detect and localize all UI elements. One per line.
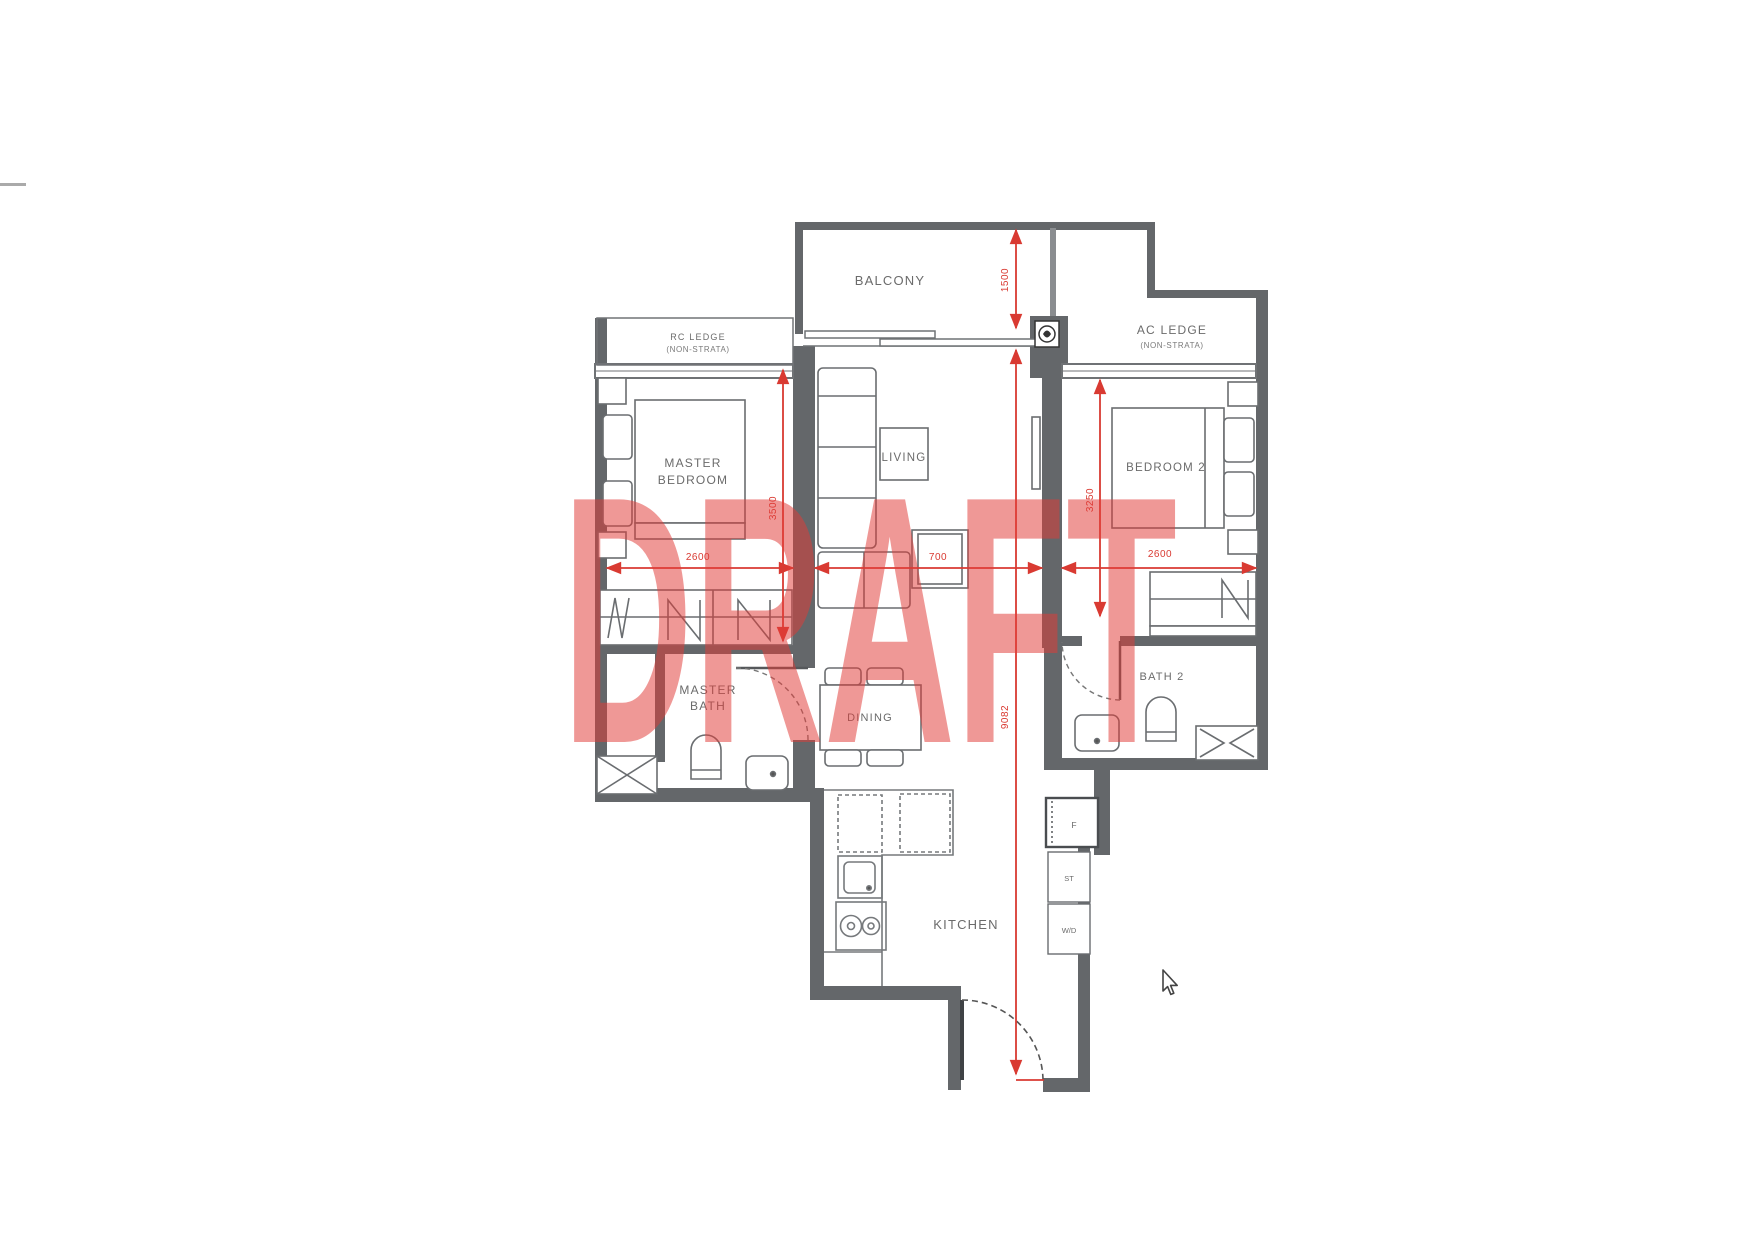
draft-watermark-text: DRAFT xyxy=(562,424,1177,818)
screen-edge-artifact xyxy=(0,183,26,186)
balcony-label: BALCONY xyxy=(855,273,926,288)
ac-ledge-sublabel: (NON-STRATA) xyxy=(1140,341,1203,350)
rc-ledge-sublabel: (NON-STRATA) xyxy=(666,345,729,354)
washer-dryer-label: W/D xyxy=(1062,926,1077,935)
dim-balcony-depth: 1500 xyxy=(1000,268,1011,292)
fridge-label: F xyxy=(1071,820,1076,830)
ac-ledge-label: AC LEDGE xyxy=(1137,323,1207,337)
storage-label: ST xyxy=(1064,874,1074,883)
mouse-cursor xyxy=(1163,970,1177,994)
floorplan-viewer: BALCONY AC LEDGE (NON-STRATA) RC LEDGE (… xyxy=(0,0,1748,1240)
floorplan-drawing: BALCONY AC LEDGE (NON-STRATA) RC LEDGE (… xyxy=(0,0,1748,1240)
kitchen-label: KITCHEN xyxy=(933,917,998,932)
kitchen-counters xyxy=(824,790,953,986)
draft-watermark: DRAFT xyxy=(562,424,1177,818)
ac-unit-icon xyxy=(1035,321,1059,347)
rc-ledge-label: RC LEDGE xyxy=(670,332,726,342)
